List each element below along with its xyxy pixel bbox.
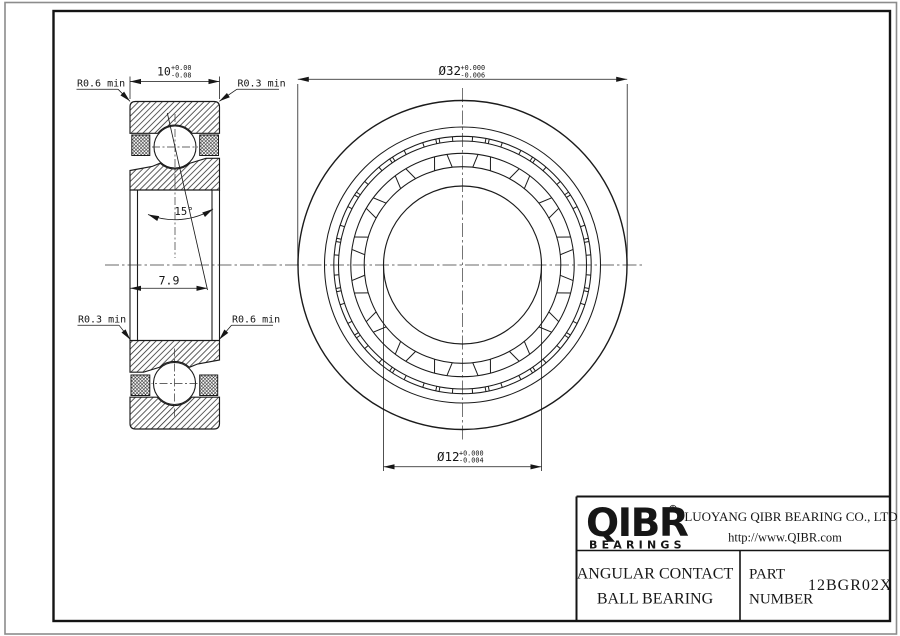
company-website: http://www.QIBR.com xyxy=(728,531,842,545)
outer-dia-tol-bottom: -0.006 xyxy=(461,71,486,79)
part-number: 12BGR02X xyxy=(808,577,892,594)
axial-dim-value: 7.9 xyxy=(159,274,180,288)
svg-text:R0.3 min: R0.3 min xyxy=(78,315,126,326)
company-logo: QIBR ® BEARINGS xyxy=(586,501,689,552)
svg-text:R0.6 min: R0.6 min xyxy=(77,79,125,90)
product-type-line2: BALL BEARING xyxy=(597,591,714,608)
svg-text:R0.6 min: R0.6 min xyxy=(232,315,280,326)
bore-dia-tol-bottom: -0.004 xyxy=(459,457,484,465)
drawing-sheet: 15° 10 +0.00 -0.08 7.9 R0.6 min R0.3 min… xyxy=(0,0,900,636)
part-label-line1: PART xyxy=(749,567,785,583)
bearing-drawing: 15° 10 +0.00 -0.08 7.9 R0.6 min R0.3 min… xyxy=(0,0,900,636)
svg-text:®: ® xyxy=(668,504,678,515)
svg-text:R0.3 min: R0.3 min xyxy=(238,79,286,90)
width-dim-value: 10 xyxy=(157,65,171,79)
width-dim-tol-bottom: -0.08 xyxy=(171,72,191,80)
contact-angle-label: 15° xyxy=(175,206,194,218)
outer-dia-value: Ø32 xyxy=(439,63,462,78)
company-name: LUOYANG QIBR BEARING CO., LTD xyxy=(684,509,897,524)
part-label-line2: NUMBER xyxy=(749,592,813,608)
svg-text:BEARINGS: BEARINGS xyxy=(589,539,686,552)
product-type-line1: ANGULAR CONTACT xyxy=(577,566,734,583)
bore-dia-value: Ø12 xyxy=(437,449,460,464)
